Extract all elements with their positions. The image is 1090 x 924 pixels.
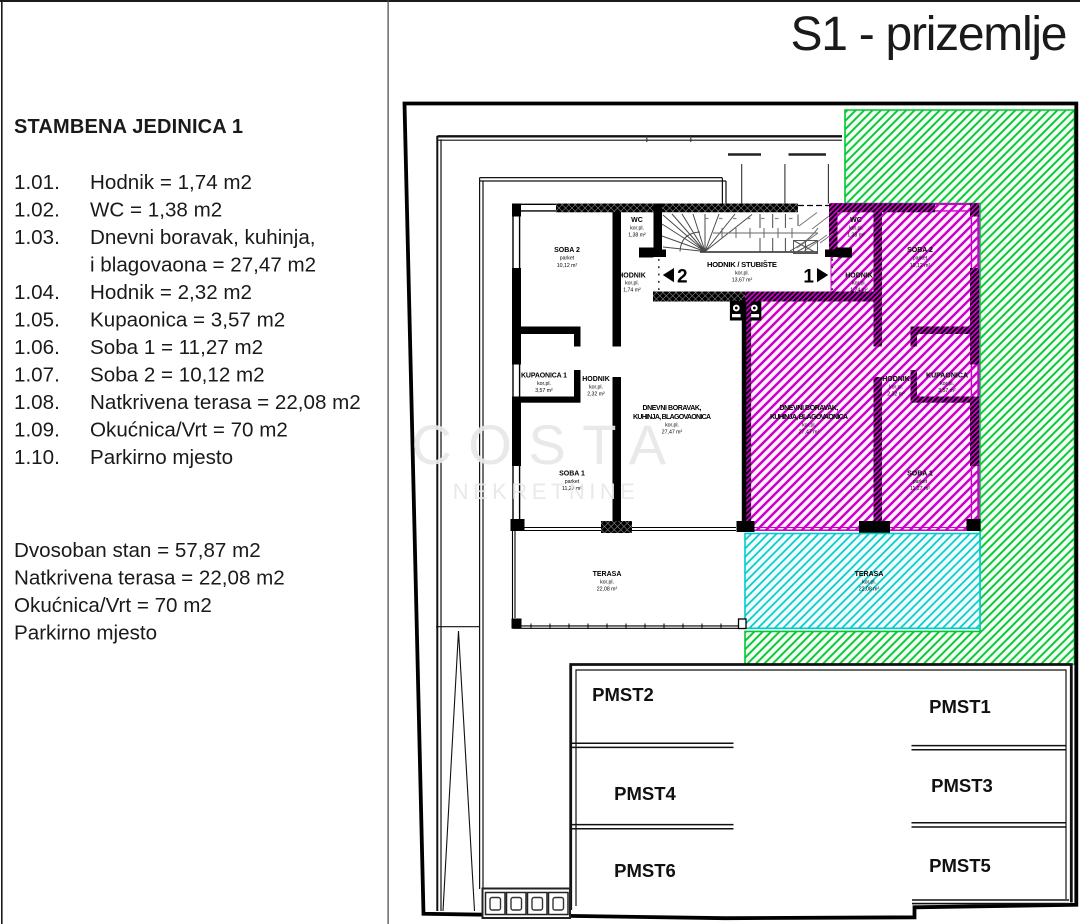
svg-text:parket: parket: [913, 479, 928, 485]
svg-text:TERASA: TERASA: [593, 571, 622, 578]
svg-text:1.03.: 1.03.: [14, 226, 60, 249]
svg-text:SOBA 2: SOBA 2: [907, 247, 933, 254]
svg-text:Natkrivena terasa = 22,08 m2: Natkrivena terasa = 22,08 m2: [90, 391, 361, 414]
svg-text:1.08.: 1.08.: [14, 391, 60, 414]
svg-text:kor.pl.: kor.pl.: [802, 423, 816, 429]
svg-text:1.10.: 1.10.: [14, 446, 60, 469]
svg-text:2,32 m²: 2,32 m²: [887, 392, 905, 398]
svg-text:Dnevni boravak, kuhinja,: Dnevni boravak, kuhinja,: [90, 226, 316, 249]
svg-text:PMST3: PMST3: [931, 775, 993, 796]
svg-text:kor.pl.: kor.pl.: [625, 281, 639, 287]
svg-text:3,57 m²: 3,57 m²: [535, 388, 553, 394]
svg-text:kor.pl.: kor.pl.: [589, 385, 603, 391]
svg-text:Hodnik = 2,32 m2: Hodnik = 2,32 m2: [90, 281, 252, 304]
svg-text:1,74 m²: 1,74 m²: [850, 288, 868, 294]
svg-text:2,32 m²: 2,32 m²: [587, 392, 605, 398]
svg-text:KUPAONICA: KUPAONICA: [926, 373, 968, 380]
svg-text:1.04.: 1.04.: [14, 281, 60, 304]
svg-text:PMST5: PMST5: [929, 855, 991, 876]
svg-text:WC: WC: [850, 217, 862, 224]
svg-text:1: 1: [803, 267, 814, 288]
svg-text:22,08 m²: 22,08 m²: [859, 587, 880, 593]
svg-text:1,38 m²: 1,38 m²: [628, 233, 646, 239]
svg-text:PMST4: PMST4: [614, 783, 676, 804]
svg-text:kor.pl.: kor.pl.: [537, 381, 551, 387]
svg-text:Dvosoban stan = 57,87 m2: Dvosoban stan = 57,87 m2: [14, 539, 261, 562]
svg-text:10,12 m²: 10,12 m²: [910, 263, 931, 269]
svg-text:parket: parket: [560, 256, 575, 262]
svg-text:PMST1: PMST1: [929, 696, 991, 717]
svg-text:kor.pl.: kor.pl.: [849, 226, 863, 232]
svg-text:HODNIK: HODNIK: [582, 376, 610, 383]
svg-text:2: 2: [677, 267, 688, 288]
svg-text:HODNIK: HODNIK: [845, 273, 873, 280]
svg-text:Hodnik = 1,74 m2: Hodnik = 1,74 m2: [90, 171, 252, 194]
svg-text:SOBA 2: SOBA 2: [554, 247, 580, 254]
svg-text:Soba 1 = 11,27 m2: Soba 1 = 11,27 m2: [90, 336, 263, 359]
svg-text:COSTA: COSTA: [411, 413, 682, 476]
svg-text:Okućnica/Vrt = 70 m2: Okućnica/Vrt = 70 m2: [90, 419, 288, 442]
svg-text:1.06.: 1.06.: [14, 336, 60, 359]
svg-text:10,12 m²: 10,12 m²: [557, 263, 578, 269]
svg-text:11,27 m²: 11,27 m²: [910, 486, 930, 492]
svg-text:kor.pl.: kor.pl.: [600, 580, 614, 586]
svg-text:1,38 m²: 1,38 m²: [847, 233, 865, 239]
svg-text:TERASA: TERASA: [855, 571, 884, 578]
svg-text:KUHINJA, BLAGOVAONICA: KUHINJA, BLAGOVAONICA: [770, 414, 848, 421]
svg-text:1.05.: 1.05.: [14, 309, 60, 332]
svg-text:Kupaonica = 3,57 m2: Kupaonica = 3,57 m2: [90, 309, 285, 332]
svg-text:Soba 2 = 10,12 m2: Soba 2 = 10,12 m2: [90, 364, 265, 387]
svg-text:NEKRETNINE: NEKRETNINE: [453, 479, 640, 504]
svg-text:1.07.: 1.07.: [14, 364, 60, 387]
svg-text:HODNIK: HODNIK: [882, 376, 910, 383]
svg-text:kor.pl.: kor.pl.: [889, 385, 903, 391]
svg-text:HODNIK: HODNIK: [618, 273, 646, 280]
svg-text:1.09.: 1.09.: [14, 419, 60, 442]
svg-text:Okućnica/Vrt = 70 m2: Okućnica/Vrt = 70 m2: [14, 594, 212, 617]
svg-text:PMST6: PMST6: [614, 860, 676, 881]
svg-text:kor.pl.: kor.pl.: [630, 226, 644, 232]
svg-text:22,08 m²: 22,08 m²: [597, 587, 618, 593]
svg-text:WC: WC: [631, 217, 643, 224]
svg-text:S1 - prizemlje: S1 - prizemlje: [791, 8, 1068, 61]
svg-text:HODNIK / STUBIŠTE: HODNIK / STUBIŠTE: [707, 260, 777, 269]
svg-text:Parkirno mjesto: Parkirno mjesto: [90, 446, 233, 469]
svg-text:27,47 m²: 27,47 m²: [799, 430, 820, 436]
svg-text:DNEVNI BORAVAK,: DNEVNI BORAVAK,: [643, 405, 702, 412]
svg-text:3,57 m²: 3,57 m²: [938, 388, 956, 394]
svg-text:kor.pl.: kor.pl.: [862, 580, 876, 586]
svg-text:Parkirno mjesto: Parkirno mjesto: [14, 622, 157, 645]
svg-text:parket: parket: [913, 256, 928, 262]
svg-text:PMST2: PMST2: [592, 684, 654, 705]
svg-text:kor.pl.: kor.pl.: [852, 281, 866, 287]
svg-text:DNEVNI BORAVAK,: DNEVNI BORAVAK,: [780, 405, 839, 412]
svg-text:1.02.: 1.02.: [14, 199, 60, 222]
svg-text:kor.pl.: kor.pl.: [735, 271, 749, 277]
svg-text:kor.pl.: kor.pl.: [940, 381, 954, 387]
svg-text:SOBA 1: SOBA 1: [907, 471, 933, 478]
svg-text:i blagovaona = 27,47 m2: i blagovaona = 27,47 m2: [90, 254, 316, 277]
svg-text:STAMBENA JEDINICA 1: STAMBENA JEDINICA 1: [14, 116, 243, 138]
svg-text:1,74 m²: 1,74 m²: [623, 288, 641, 294]
svg-text:KUPAONICA 1: KUPAONICA 1: [521, 373, 567, 380]
svg-text:WC = 1,38 m2: WC = 1,38 m2: [90, 199, 222, 222]
svg-text:Natkrivena terasa = 22,08 m2: Natkrivena terasa = 22,08 m2: [14, 567, 285, 590]
svg-text:1.01.: 1.01.: [14, 171, 60, 194]
svg-text:13,67 m²: 13,67 m²: [732, 278, 753, 284]
